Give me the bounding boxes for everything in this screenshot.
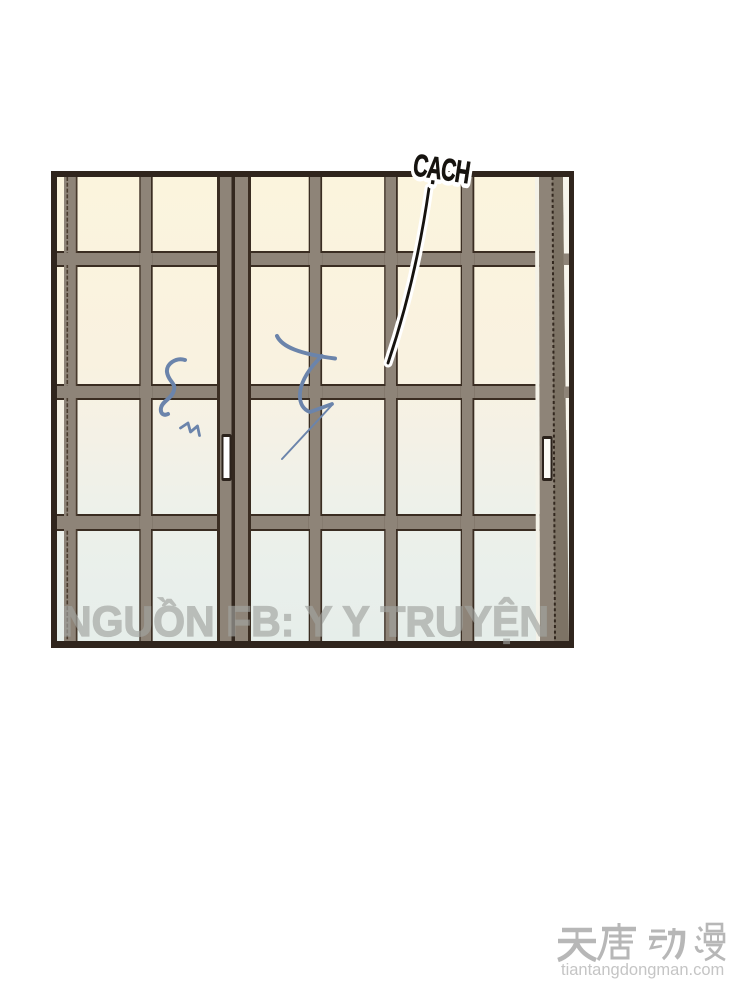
svg-text:NGUỒN FB: Y Y TRUYỆN: NGUỒN FB: Y Y TRUYỆN (62, 597, 549, 646)
svg-text:tiantangdongman.com: tiantangdongman.com (561, 961, 724, 979)
